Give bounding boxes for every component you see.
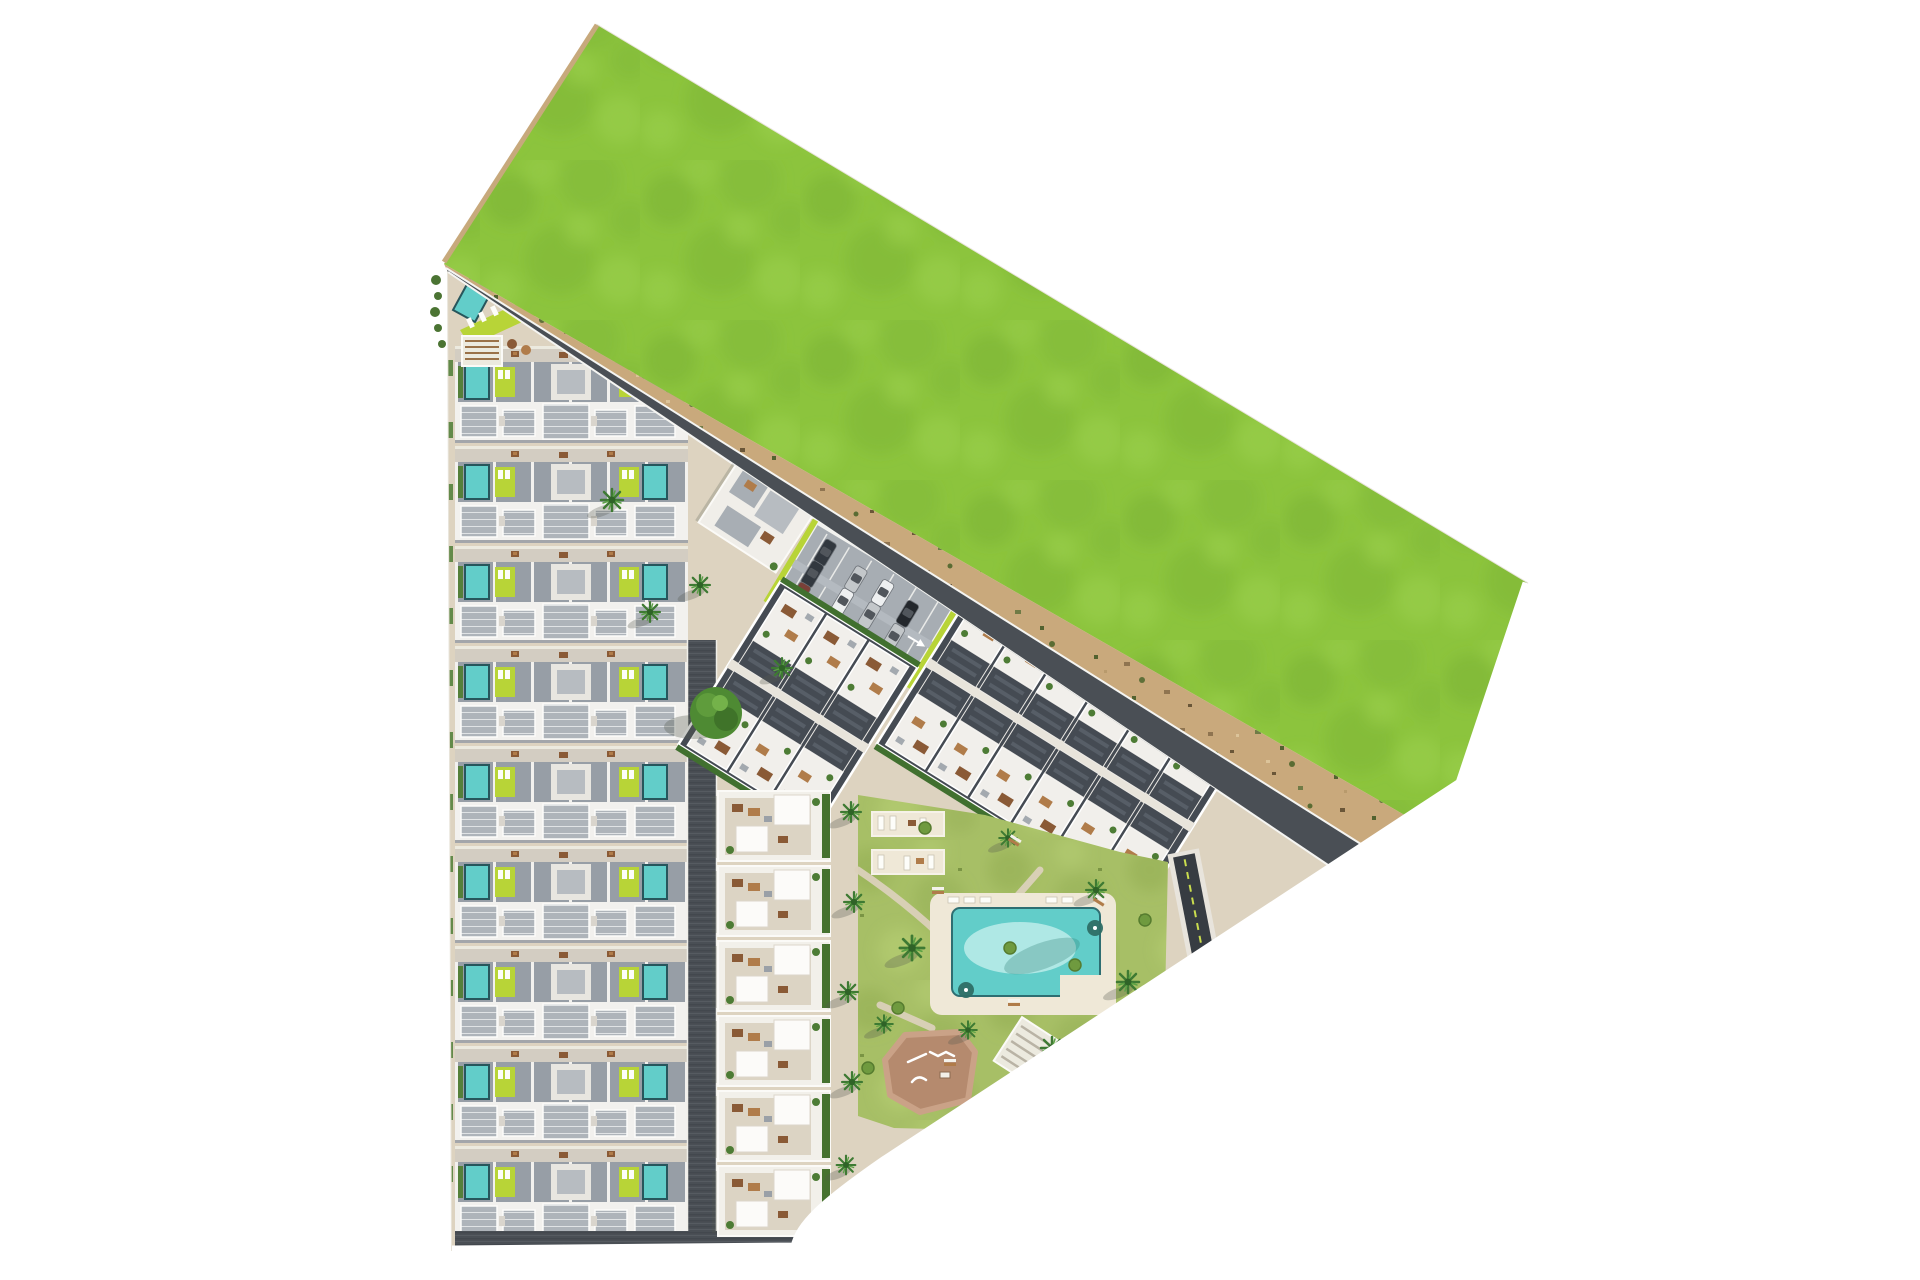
villa-row (455, 546, 688, 643)
apartment-module (712, 791, 830, 861)
cafe-table (521, 345, 531, 355)
bush (862, 1062, 874, 1074)
hedge-strip (446, 608, 453, 624)
bush (1079, 1102, 1091, 1114)
hedge-strip (446, 1042, 453, 1058)
bench-seat (944, 1063, 956, 1066)
bench-seat (1008, 999, 1020, 1002)
bench-seat (1008, 1003, 1020, 1006)
hedge-strip (446, 484, 453, 500)
bush (892, 1002, 904, 1014)
bush (1069, 959, 1081, 971)
hedge-strip (446, 422, 453, 438)
villa-row (455, 1146, 688, 1243)
bush (1139, 914, 1151, 926)
hedge-strip (446, 546, 453, 562)
villa-row (455, 746, 688, 843)
cafe-table (507, 339, 517, 349)
villa-row (455, 646, 688, 743)
apartment-module (712, 941, 830, 1011)
bench-seat (944, 1059, 956, 1062)
bush (1004, 942, 1016, 954)
hedge-strip (446, 918, 453, 934)
villa-row (455, 946, 688, 1043)
site-plan-stage: Aerial site plan rendering of a coastal … (0, 0, 1920, 1280)
playground (885, 1032, 975, 1112)
apartment-module (712, 1166, 830, 1236)
villa-block (455, 346, 688, 1243)
apartment-module (712, 1091, 830, 1161)
villa-row (455, 1046, 688, 1143)
play-house (940, 1072, 950, 1078)
villa-row (455, 446, 688, 543)
apartment-module (712, 866, 830, 936)
hedge-strip (446, 980, 453, 996)
corner-shrubs (430, 275, 446, 348)
hedge-strip (446, 1104, 453, 1120)
bench-seat (932, 887, 944, 890)
swimming-pool-area (930, 893, 1116, 1015)
hedge-strip (446, 1166, 453, 1182)
apartment-module (712, 1016, 830, 1086)
hedge-strip (446, 360, 453, 376)
bench-seat (932, 891, 944, 894)
pool-step-deck (1060, 975, 1102, 997)
villa-row (455, 846, 688, 943)
site-plan: Aerial site plan rendering of a coastal … (0, 0, 1920, 1280)
bush (919, 822, 931, 834)
